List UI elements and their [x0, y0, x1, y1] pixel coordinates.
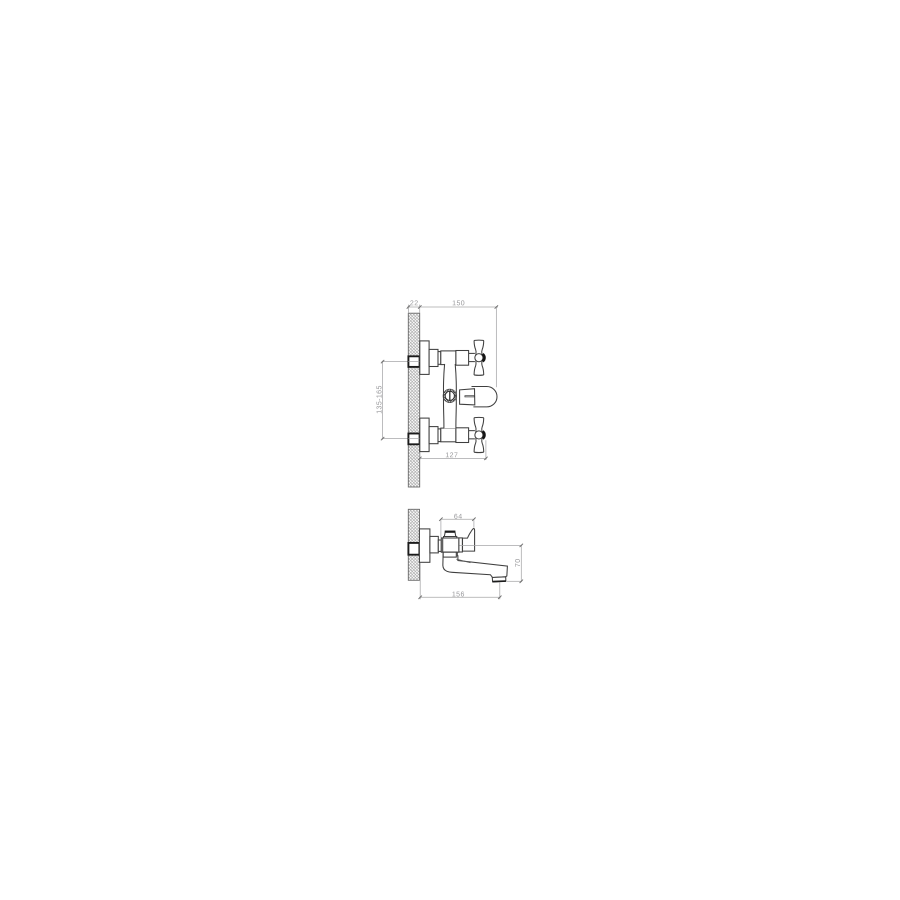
svg-text:70: 70	[515, 559, 522, 568]
svg-text:22: 22	[410, 300, 419, 307]
svg-text:156: 156	[452, 591, 465, 598]
svg-text:150: 150	[452, 300, 465, 307]
svg-text:64: 64	[454, 514, 463, 521]
svg-text:135-165: 135-165	[377, 385, 384, 414]
svg-text:127: 127	[445, 452, 458, 459]
